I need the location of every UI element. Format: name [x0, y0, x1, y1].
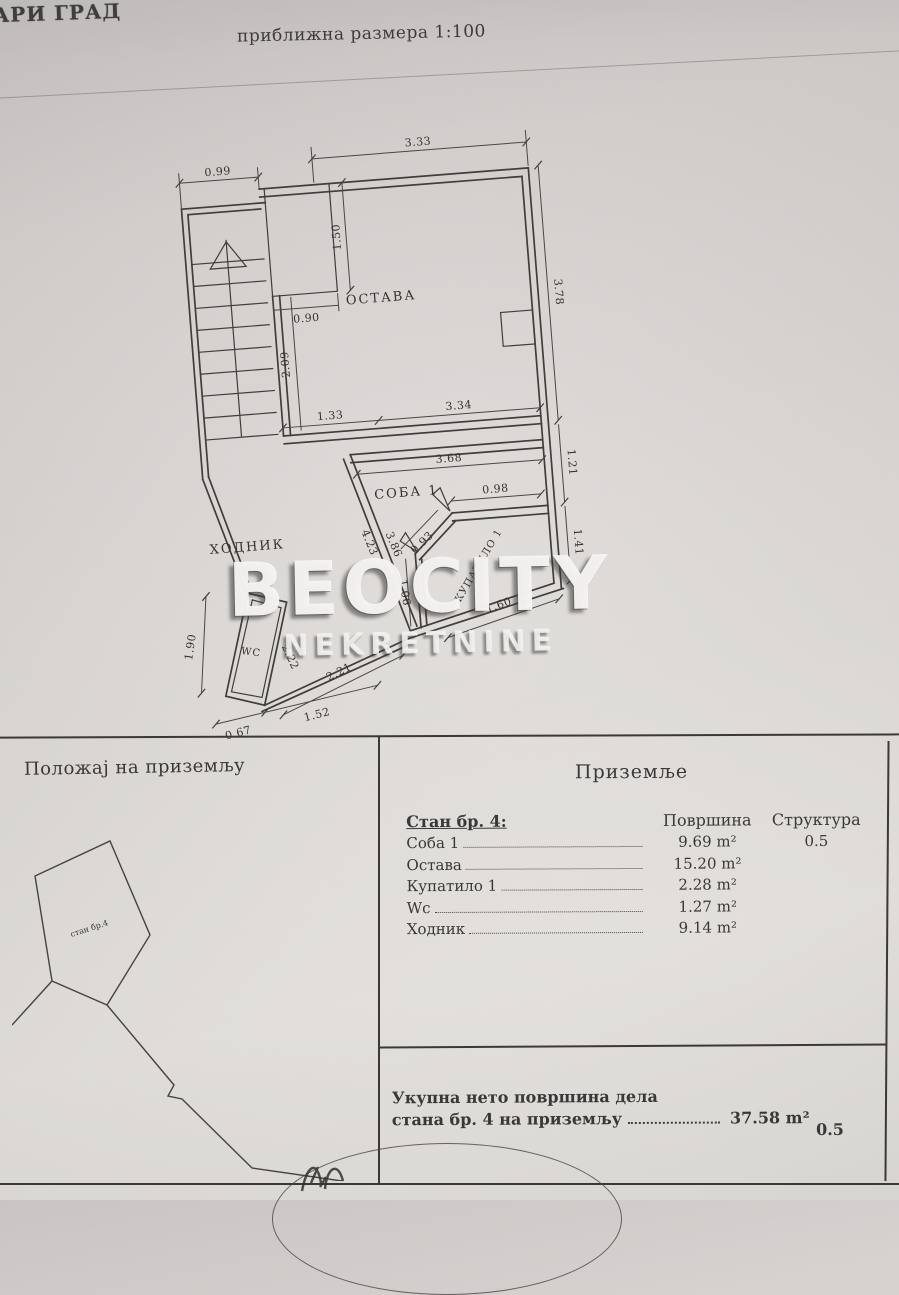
dim-label: 4.23: [358, 528, 380, 557]
dim-label: 1.90: [182, 633, 199, 661]
floor-title: Приземље: [378, 760, 885, 785]
unit-parcel-label: стан бр.4: [69, 918, 109, 939]
dim-label: 1.33: [316, 408, 343, 423]
table-row: Ходник 9.14 m²: [407, 918, 867, 942]
row-name: Соба 1: [406, 834, 459, 852]
municipality-label: АРИ ГРАД: [0, 0, 121, 27]
table-row: Остава 15.20 m²: [406, 853, 866, 877]
row-area: 9.14 m²: [649, 918, 767, 937]
parcel-edge-line: [12, 981, 52, 1025]
row-name: Ходник: [407, 920, 465, 938]
wall-bath-left: [415, 553, 427, 627]
summary-panel: Положај на приземљу стан бр.4 Приземље С…: [0, 735, 899, 1185]
dim-label: 3.34: [445, 398, 472, 413]
dim-label: 2.09: [278, 351, 293, 378]
dim-label: 1.41: [571, 528, 586, 555]
dim-label: 2.21: [324, 660, 354, 683]
ground-floor-summary: Приземље Стан бр. 4: Површина Структура …: [378, 734, 887, 1185]
room-label-room1: СОБА 1: [374, 483, 439, 503]
table-row: Соба 1 9.69 m² 0.5: [406, 832, 866, 856]
wall-bath-top: [452, 505, 548, 521]
row-area: 9.69 m²: [648, 832, 766, 851]
dim-label: 3.78: [551, 278, 566, 305]
total-block: Укупна нето површина дела стана бр. 4 на…: [392, 1086, 872, 1130]
total-line1: Укупна нето површина дела: [392, 1086, 872, 1108]
total-structure: 0.5: [816, 1120, 844, 1139]
column-header-area: Површина: [648, 810, 766, 830]
row-name: Wc: [407, 899, 431, 917]
table-row: Купатило 1 2.28 m²: [407, 875, 867, 899]
dim-label: 2.22: [279, 642, 302, 672]
row-area: 1.27 m²: [649, 897, 767, 916]
dim-label: 1.50: [329, 223, 344, 250]
dim-label: 1.21: [565, 449, 580, 476]
stamp-scribble: [296, 1147, 366, 1199]
wall-top: [259, 168, 529, 197]
row-name: Остава: [406, 855, 461, 873]
room-label-storage: ОСТАВА: [345, 288, 416, 308]
room-label-wc: WC: [240, 646, 261, 660]
room-label-bath: КУПАТИЛО 1: [453, 527, 504, 604]
window-niche: [501, 310, 536, 346]
wall-corridor-left: [203, 474, 251, 594]
wall-bottom-diagonal: [404, 582, 566, 638]
table-row: Wc 1.27 m²: [407, 896, 867, 920]
total-line2: стана бр. 4 на приземљу: [392, 1109, 622, 1129]
area-table: Стан бр. 4: Површина Структура Соба 1 9.…: [406, 810, 867, 942]
row-area: 15.20 m²: [648, 854, 766, 873]
room-label-hall: ХОДНИК: [209, 537, 285, 558]
dim-label: 0.90: [293, 311, 320, 326]
floor-plan: 0.99 3.33 1.50 0.90 2.09 1.33 3.34 3.68 …: [145, 130, 665, 770]
column-header-structure: Структура: [766, 810, 866, 830]
site-position-sketch: стан бр.4: [12, 833, 367, 1181]
dim-label: 0.99: [204, 164, 231, 179]
table-header-row: Стан бр. 4: Површина Структура: [406, 810, 866, 831]
dim-label: 3.33: [404, 134, 431, 149]
row-structure: 0.5: [766, 832, 866, 851]
row-area: 2.28 m²: [649, 875, 767, 894]
dim-label: 0.93: [408, 529, 436, 557]
dim-label: 1.60: [484, 595, 513, 616]
dim-label: 3.68: [435, 451, 462, 466]
position-title: Положај на приземљу: [24, 755, 245, 780]
wall-soba1-left-diagonal: [343, 451, 417, 635]
total-area: 37.58 m²: [730, 1108, 810, 1127]
row-name: Купатило 1: [407, 877, 498, 895]
dim-label: 0.98: [482, 481, 509, 496]
dim-label: 1.52: [302, 705, 331, 724]
shaft-hatched: [264, 184, 337, 297]
unit-title: Стан бр. 4:: [406, 812, 506, 832]
